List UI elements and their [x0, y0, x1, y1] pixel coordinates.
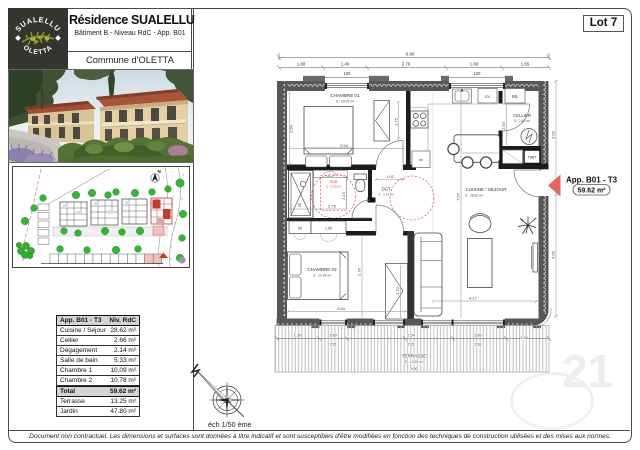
svg-text:1.60: 1.60	[470, 62, 479, 67]
svg-text:1.75: 1.75	[394, 117, 399, 126]
svg-text:1.40: 1.40	[341, 62, 350, 67]
svg-text:LV: LV	[485, 94, 490, 99]
svg-text:ML: ML	[512, 94, 519, 99]
svg-text:CHAMBRE 01: CHAMBRE 01	[330, 93, 360, 98]
svg-text:CUISINE / SEJOUR: CUISINE / SEJOUR	[465, 187, 507, 192]
svg-text:1.30: 1.30	[294, 333, 303, 338]
svg-text:CELLIER: CELLIER	[513, 113, 531, 118]
svg-text:59.62 m²: 59.62 m²	[577, 188, 606, 195]
svg-text:TERRASSE: TERRASSE	[402, 354, 427, 359]
svg-text:SUALELLU: SUALELLU	[13, 15, 62, 34]
svg-text:SDB: SDB	[330, 180, 338, 184]
svg-text:215: 215	[330, 342, 337, 347]
svg-text:2.76: 2.76	[402, 62, 411, 67]
svg-text:N: N	[158, 169, 161, 174]
svg-text:CHAMBRE 02: CHAMBRE 02	[307, 267, 337, 272]
svg-text:S : 5,33 m²: S : 5,33 m²	[326, 185, 341, 189]
svg-text:4.05: 4.05	[551, 250, 556, 259]
svg-text:95: 95	[297, 202, 302, 207]
svg-text:2.76: 2.76	[357, 267, 362, 276]
svg-text:2.92: 2.92	[551, 130, 556, 139]
svg-text:2.60: 2.60	[289, 124, 294, 133]
svg-text:215: 215	[408, 342, 415, 347]
svg-text:TGBT: TGBT	[528, 156, 537, 160]
svg-text:S : 10,09 m²: S : 10,09 m²	[336, 100, 355, 104]
svg-text:App. B01 - T3: App. B01 - T3	[566, 176, 618, 185]
svg-text:2.54: 2.54	[407, 333, 416, 338]
svg-text:S : 28,62 m²: S : 28,62 m²	[465, 194, 484, 198]
svg-text:50: 50	[298, 227, 302, 231]
svg-text:1.05: 1.05	[325, 227, 332, 231]
svg-text:1.80: 1.80	[329, 333, 338, 338]
svg-text:2.13: 2.13	[341, 191, 346, 200]
svg-text:1.88: 1.88	[297, 62, 306, 67]
svg-text:4.17: 4.17	[469, 296, 478, 301]
svg-text:3.54: 3.54	[337, 306, 346, 311]
svg-text:1.80: 1.80	[474, 333, 483, 338]
svg-text:100: 100	[474, 71, 482, 76]
svg-text:8.90: 8.90	[406, 52, 415, 57]
svg-text:S : 2,14 m²: S : 2,14 m²	[378, 193, 393, 197]
svg-text:2.76: 2.76	[328, 204, 337, 209]
svg-text:ec: ec	[419, 158, 423, 162]
svg-text:3.94: 3.94	[340, 143, 349, 148]
svg-text:2.50: 2.50	[501, 121, 506, 130]
svg-text:1.70: 1.70	[395, 286, 400, 295]
svg-text:7.57: 7.57	[456, 192, 461, 201]
svg-text:S : 13,25 m²: S : 13,25 m²	[405, 360, 424, 364]
svg-text:1.02: 1.02	[386, 174, 395, 179]
svg-text:1.65: 1.65	[521, 62, 530, 67]
svg-text:1.36: 1.36	[520, 335, 529, 340]
svg-text:218: 218	[475, 342, 482, 347]
svg-text:160: 160	[344, 71, 352, 76]
svg-text:S : 10,78 m²: S : 10,78 m²	[313, 274, 332, 278]
svg-text:9.00: 9.00	[411, 367, 418, 371]
svg-text:S : 2,66 m²: S : 2,66 m²	[514, 119, 531, 123]
svg-text:DGT: DGT	[381, 187, 390, 192]
svg-text:OLETTA: OLETTA	[22, 44, 54, 56]
